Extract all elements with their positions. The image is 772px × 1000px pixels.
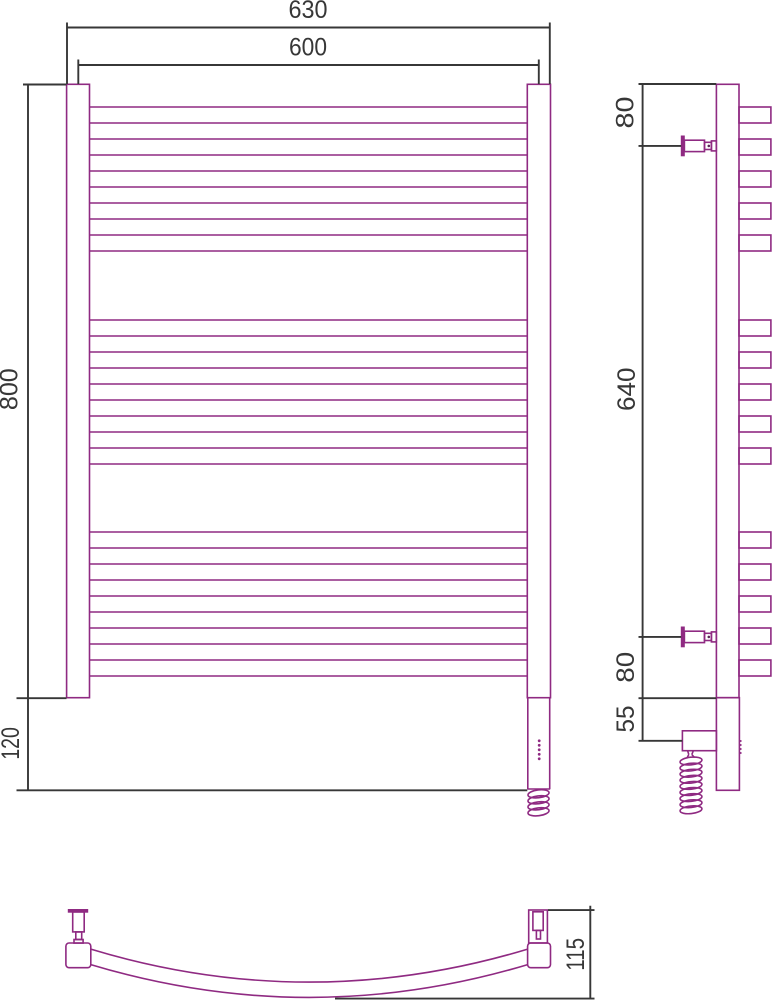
svg-text:120: 120 [0,727,25,760]
svg-text:640: 640 [613,367,641,411]
svg-text:80: 80 [611,97,639,129]
svg-text:55: 55 [612,706,640,733]
svg-text:600: 600 [289,34,327,62]
svg-text:630: 630 [289,0,328,24]
svg-text:80: 80 [612,652,640,683]
svg-text:800: 800 [0,368,24,410]
svg-text:115: 115 [562,938,590,971]
